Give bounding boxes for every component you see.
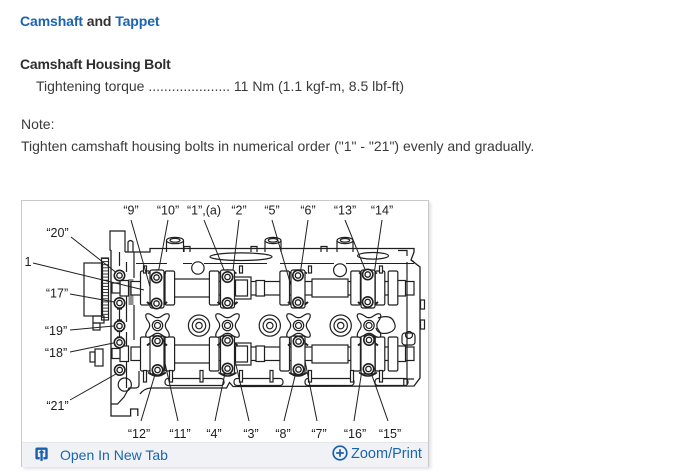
svg-text:“17”: “17” <box>46 287 68 301</box>
svg-text:“6”: “6” <box>300 204 315 218</box>
svg-text:“4”: “4” <box>206 427 221 441</box>
svg-text:“7”: “7” <box>311 427 326 441</box>
svg-text:“1”,(a): “1”,(a) <box>187 204 221 218</box>
svg-text:“8”: “8” <box>275 427 290 441</box>
svg-text:“20”: “20” <box>46 226 68 240</box>
svg-text:“11”: “11” <box>169 427 190 441</box>
svg-text:“13”: “13” <box>334 204 356 218</box>
svg-text:“12”: “12” <box>128 427 150 441</box>
svg-text:“2”: “2” <box>231 204 246 218</box>
svg-text:“14”: “14” <box>371 204 393 218</box>
svg-text:“9”: “9” <box>123 204 138 218</box>
svg-text:“18”: “18” <box>45 346 67 360</box>
svg-text:1: 1 <box>25 255 32 269</box>
svg-text:“15”: “15” <box>379 427 401 441</box>
svg-text:“19”: “19” <box>45 324 67 338</box>
svg-text:“5”: “5” <box>264 204 279 218</box>
svg-text:“3”: “3” <box>243 427 258 441</box>
svg-text:“16”: “16” <box>344 427 366 441</box>
svg-text:“21”: “21” <box>46 399 68 413</box>
svg-text:“10”: “10” <box>157 204 179 218</box>
